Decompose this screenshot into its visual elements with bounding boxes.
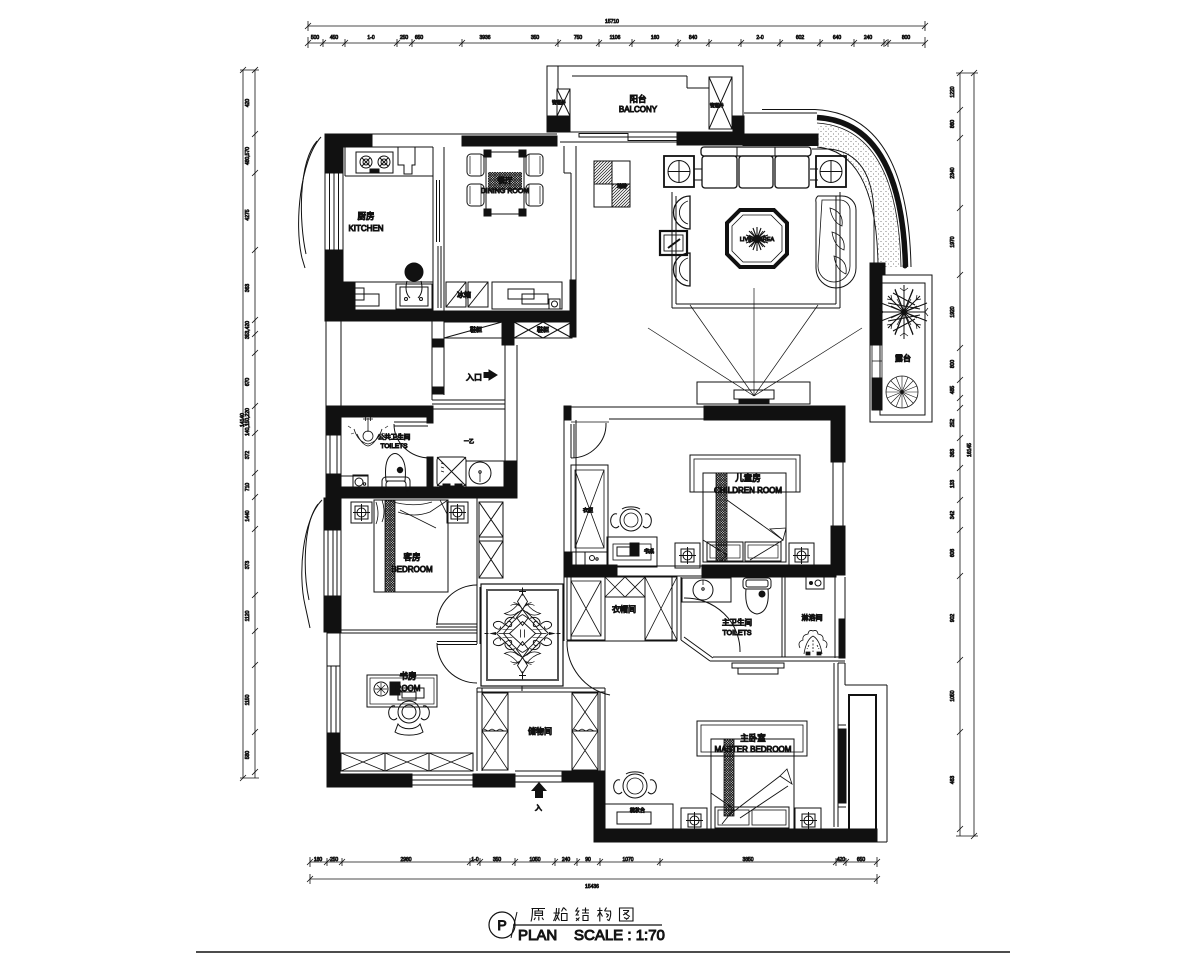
svg-text:书桌: 书桌 xyxy=(644,548,654,555)
svg-text:4275: 4275 xyxy=(245,209,251,220)
svg-text:1150: 1150 xyxy=(245,694,251,705)
svg-text:15710: 15710 xyxy=(605,19,619,25)
svg-text:342: 342 xyxy=(950,511,956,520)
svg-text:2340: 2340 xyxy=(950,167,956,178)
svg-text:580: 580 xyxy=(245,751,251,760)
svg-text:1106: 1106 xyxy=(610,35,621,41)
svg-text:梳妆台: 梳妆台 xyxy=(630,807,645,814)
svg-text:3850: 3850 xyxy=(742,857,753,863)
svg-text:主卧室: 主卧室 xyxy=(740,733,766,743)
svg-text:90: 90 xyxy=(585,857,591,863)
svg-text:485: 485 xyxy=(950,386,956,395)
svg-text:1120: 1120 xyxy=(245,610,251,621)
svg-text:1-0: 1-0 xyxy=(471,857,478,863)
svg-text:1050: 1050 xyxy=(529,857,540,863)
svg-text:DINING ROOM: DINING ROOM xyxy=(481,188,529,195)
svg-text:TOILETS: TOILETS xyxy=(381,443,409,450)
svg-text:450: 450 xyxy=(330,35,339,41)
svg-text:670: 670 xyxy=(245,378,251,387)
svg-text:420: 420 xyxy=(837,857,846,863)
svg-text:602: 602 xyxy=(796,35,805,41)
svg-text:250: 250 xyxy=(330,857,339,863)
svg-text:1440: 1440 xyxy=(245,510,251,521)
svg-text:902: 902 xyxy=(950,614,956,623)
svg-text:15436: 15436 xyxy=(585,884,599,890)
svg-text:353,420: 353,420 xyxy=(245,321,251,339)
svg-text:1070: 1070 xyxy=(622,857,633,863)
svg-text:管道井: 管道井 xyxy=(552,99,566,106)
svg-text:PLAN: PLAN xyxy=(518,927,557,944)
svg-text:133: 133 xyxy=(950,480,956,489)
svg-text:350: 350 xyxy=(493,857,502,863)
svg-text:3936: 3936 xyxy=(479,35,490,41)
svg-text:KITCHEN: KITCHEN xyxy=(348,224,383,233)
svg-text:衣帽间: 衣帽间 xyxy=(612,604,636,614)
svg-text:350: 350 xyxy=(531,35,540,41)
svg-text:露台: 露台 xyxy=(895,353,911,363)
svg-text:840: 840 xyxy=(689,35,698,41)
svg-text:儿童房: 儿童房 xyxy=(735,473,761,483)
svg-text:1920: 1920 xyxy=(950,306,956,317)
svg-text:2980: 2980 xyxy=(400,857,411,863)
svg-text:P: P xyxy=(497,917,506,933)
svg-text:240: 240 xyxy=(864,35,873,41)
svg-text:420: 420 xyxy=(245,99,251,108)
svg-text:463: 463 xyxy=(950,776,956,785)
svg-text:16145: 16145 xyxy=(967,443,973,457)
svg-text:640: 640 xyxy=(833,35,842,41)
svg-text:MASTER BEDROOM: MASTER BEDROOM xyxy=(715,745,792,754)
svg-text:800: 800 xyxy=(950,360,956,369)
svg-text:1970: 1970 xyxy=(950,236,956,247)
svg-text:372: 372 xyxy=(245,451,251,460)
svg-text:ROOM: ROOM xyxy=(396,684,421,693)
svg-text:公共卫生间: 公共卫生间 xyxy=(378,432,411,441)
svg-text:淋浴间: 淋浴间 xyxy=(802,613,823,622)
svg-text:240: 240 xyxy=(562,857,571,863)
svg-text:鞋柜: 鞋柜 xyxy=(537,326,549,334)
svg-text:363: 363 xyxy=(245,284,251,293)
svg-text:860: 860 xyxy=(950,120,956,129)
svg-text:地砖: 地砖 xyxy=(617,183,627,190)
svg-text:252: 252 xyxy=(950,419,956,428)
svg-text:BEDROOM: BEDROOM xyxy=(391,565,433,574)
svg-text:主卫生间: 主卫生间 xyxy=(722,617,752,627)
svg-text:一乙: 一乙 xyxy=(464,438,474,445)
svg-text:入口: 入口 xyxy=(466,373,482,382)
svg-text:800: 800 xyxy=(902,35,911,41)
svg-text:TOILETS: TOILETS xyxy=(722,630,751,637)
svg-text:650: 650 xyxy=(415,35,424,41)
svg-text:480,570: 480,570 xyxy=(245,147,251,165)
svg-text:CHILDREN ROOM: CHILDREN ROOM xyxy=(714,486,782,495)
svg-text:冰箱: 冰箱 xyxy=(457,290,471,299)
svg-text:1050: 1050 xyxy=(950,690,956,701)
svg-text:180: 180 xyxy=(314,857,323,863)
svg-text:阳台: 阳台 xyxy=(629,94,646,104)
svg-text:衣柜: 衣柜 xyxy=(583,507,593,514)
svg-text:250: 250 xyxy=(400,35,409,41)
svg-text:餐厅: 餐厅 xyxy=(498,176,513,185)
svg-text:BALCONY: BALCONY xyxy=(619,105,658,114)
svg-text:1-0: 1-0 xyxy=(367,35,374,41)
svg-text:鞋柜: 鞋柜 xyxy=(470,326,482,334)
svg-text:608: 608 xyxy=(950,549,956,558)
svg-text:710: 710 xyxy=(245,483,251,492)
svg-text:客房: 客房 xyxy=(403,552,420,562)
svg-text:373: 373 xyxy=(245,561,251,570)
svg-text:650: 650 xyxy=(857,857,866,863)
svg-text:入: 入 xyxy=(535,804,542,812)
svg-text:LIVING AREA: LIVING AREA xyxy=(740,237,775,243)
svg-text:管道井: 管道井 xyxy=(710,102,724,109)
svg-text:363: 363 xyxy=(950,449,956,458)
svg-text:2-0: 2-0 xyxy=(756,35,763,41)
svg-text:厨房: 厨房 xyxy=(357,211,374,221)
svg-text:500: 500 xyxy=(311,35,320,41)
svg-text:14140: 14140 xyxy=(240,413,246,427)
svg-text:750: 750 xyxy=(574,35,583,41)
svg-text:储物间: 储物间 xyxy=(528,726,552,736)
svg-text:书房: 书房 xyxy=(399,671,416,681)
svg-text:1220: 1220 xyxy=(950,86,956,97)
svg-text:SCALE : 1:70: SCALE : 1:70 xyxy=(574,927,665,944)
svg-text:160: 160 xyxy=(651,35,660,41)
